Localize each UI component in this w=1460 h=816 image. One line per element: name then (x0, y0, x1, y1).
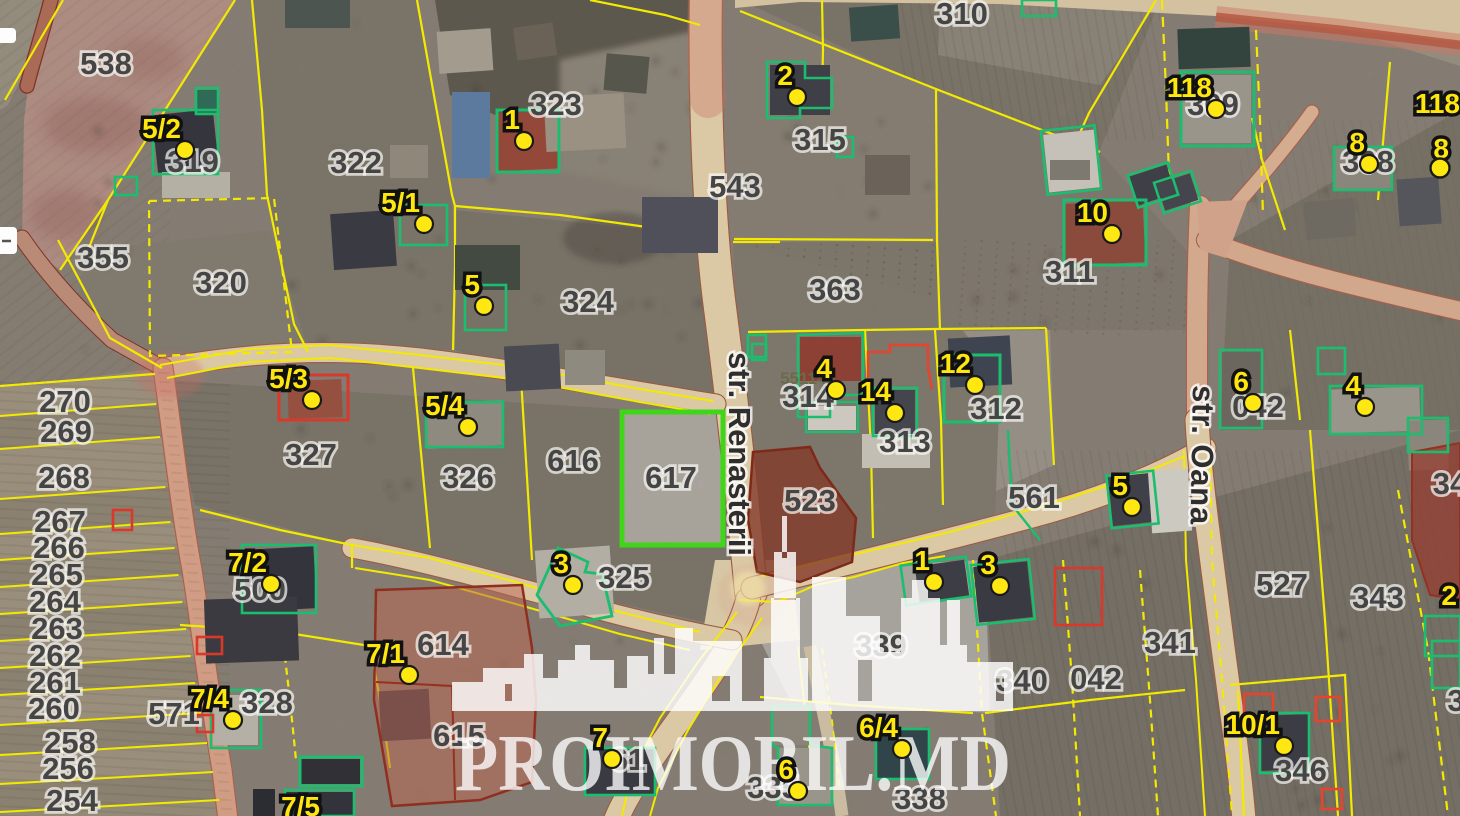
svg-text:4: 4 (816, 353, 832, 384)
svg-text:254: 254 (46, 783, 98, 816)
svg-text:5/4: 5/4 (425, 390, 464, 421)
svg-text:34: 34 (1433, 466, 1460, 501)
svg-text:543: 543 (709, 169, 761, 204)
svg-text:3: 3 (980, 549, 996, 580)
svg-text:PROIMOBIL.MD: PROIMOBIL.MD (455, 720, 1011, 808)
svg-text:10: 10 (1077, 197, 1108, 228)
svg-text:311: 311 (1045, 254, 1095, 289)
svg-text:325: 325 (598, 560, 650, 595)
svg-text:328: 328 (241, 685, 293, 720)
svg-text:6: 6 (1233, 366, 1249, 397)
svg-text:1: 1 (914, 545, 930, 576)
svg-text:363: 363 (809, 272, 861, 307)
svg-text:7/5: 7/5 (281, 791, 320, 816)
svg-text:315: 315 (794, 122, 846, 157)
svg-text:324: 324 (562, 284, 614, 319)
svg-text:6: 6 (778, 754, 794, 785)
svg-text:260: 260 (28, 691, 80, 726)
svg-text:323: 323 (530, 87, 582, 122)
svg-text:5/1: 5/1 (381, 187, 420, 218)
svg-text:310: 310 (936, 0, 988, 31)
svg-text:326: 326 (442, 460, 494, 495)
svg-text:346: 346 (1275, 753, 1327, 788)
svg-text:312: 312 (970, 391, 1022, 426)
svg-text:8: 8 (1349, 127, 1365, 158)
svg-text:7/4: 7/4 (190, 683, 229, 714)
svg-text:3: 3 (1447, 683, 1460, 718)
svg-text:7/2: 7/2 (228, 547, 267, 578)
svg-text:5: 5 (464, 269, 480, 300)
svg-text:616: 616 (547, 443, 599, 478)
svg-text:523: 523 (784, 483, 836, 518)
svg-text:355: 355 (77, 240, 129, 275)
svg-text:str. Oana: str. Oana (1184, 385, 1221, 526)
svg-text:313: 313 (879, 424, 931, 459)
svg-text:268: 268 (38, 460, 90, 495)
svg-text:2: 2 (777, 60, 793, 91)
svg-text:320: 320 (195, 265, 247, 300)
svg-text:10/1: 10/1 (1226, 709, 1281, 740)
svg-text:5: 5 (1112, 470, 1128, 501)
svg-text:118: 118 (1167, 72, 1212, 103)
svg-text:4: 4 (1345, 370, 1361, 401)
svg-text:118: 118 (1415, 88, 1460, 119)
svg-text:042: 042 (1070, 661, 1122, 696)
svg-text:527: 527 (1256, 567, 1308, 602)
svg-text:256: 256 (42, 751, 94, 786)
svg-text:269: 269 (40, 414, 92, 449)
svg-text:343: 343 (1352, 580, 1404, 615)
svg-text:5/2: 5/2 (142, 113, 181, 144)
svg-text:str. Renasterii: str. Renasterii (722, 352, 757, 557)
svg-text:327: 327 (285, 437, 337, 472)
svg-text:12: 12 (940, 348, 971, 379)
svg-text:7/1: 7/1 (366, 638, 405, 669)
svg-text:322: 322 (330, 145, 382, 180)
svg-text:7: 7 (592, 722, 608, 753)
svg-text:1: 1 (504, 104, 520, 135)
svg-text:561: 561 (1008, 480, 1060, 515)
svg-text:341: 341 (1144, 625, 1196, 660)
svg-text:617: 617 (645, 460, 697, 495)
svg-text:614: 614 (417, 627, 469, 662)
svg-text:2: 2 (1441, 580, 1457, 611)
svg-text:538: 538 (80, 46, 132, 81)
svg-text:5/3: 5/3 (269, 363, 308, 394)
svg-text:6/4: 6/4 (859, 712, 898, 743)
svg-text:14: 14 (860, 376, 892, 407)
svg-text:3: 3 (553, 548, 569, 579)
